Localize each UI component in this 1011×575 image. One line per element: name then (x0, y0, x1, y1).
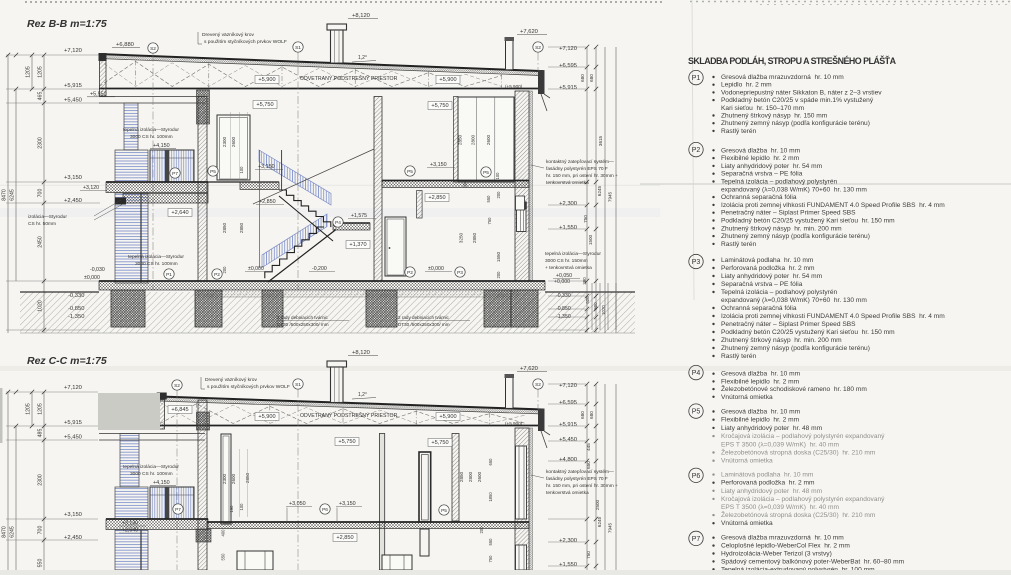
svg-text:2 rady debniacich tvárnic: 2 rady debniacich tvárnic (277, 315, 329, 320)
svg-text:500: 500 (593, 302, 598, 310)
svg-text:Podkladný betón C20/25 vystuže: Podkladný betón C20/25 vystužený Kari si… (721, 218, 895, 225)
svg-text:Perforovaná podložka hr. 2 mm: Perforovaná podložka hr. 2 mm (721, 480, 815, 487)
svg-text:±0,000: ±0,000 (84, 275, 100, 281)
svg-text:tepelná izolácia—Styrodur: tepelná izolácia—Styrodur (128, 254, 184, 260)
svg-text:S2: S2 (174, 383, 180, 389)
svg-text:EPS T 3500 (λ=0,039 W/mK) hr.: EPS T 3500 (λ=0,039 W/mK) hr. 40 mm (721, 441, 839, 448)
svg-text:+5,915: +5,915 (64, 83, 82, 89)
svg-text:Spádový cementový balkónový po: Spádový cementový balkónový poter-WeberB… (721, 558, 905, 565)
svg-text:Liaty anhydridový poter hr. 4: Liaty anhydridový poter hr. 48 mm (721, 488, 823, 495)
svg-text:+6,595: +6,595 (559, 63, 577, 69)
svg-text:1850: 1850 (488, 492, 493, 502)
svg-text:kontaktný zatepľovací systém—: kontaktný zatepľovací systém— (546, 159, 614, 165)
svg-text:650: 650 (488, 458, 493, 466)
svg-text:680: 680 (580, 411, 585, 419)
svg-text:445: 445 (586, 443, 591, 451)
svg-text:+5,900: +5,900 (258, 414, 275, 420)
svg-text:7945: 7945 (608, 522, 613, 533)
svg-text:Flexibilné lepidlo hr. 2 mm: Flexibilné lepidlo hr. 2 mm (721, 378, 800, 385)
svg-text:Gresová dlažba hr. 10 mm: Gresová dlažba hr. 10 mm (721, 147, 801, 154)
svg-text:P4: P4 (335, 220, 341, 226)
svg-text:Drevený väzníkový krov: Drevený väzníkový krov (205, 377, 257, 383)
svg-text:2600: 2600 (486, 134, 491, 145)
svg-text:Izolácia proti zemnej vlhkosti: Izolácia proti zemnej vlhkosti FUNDAMENT… (721, 313, 945, 320)
svg-text:+5,450: +5,450 (64, 435, 82, 441)
svg-text:tenkovrstvá omietka: tenkovrstvá omietka (546, 180, 589, 186)
svg-text:+7,620: +7,620 (520, 29, 538, 35)
svg-text:2600: 2600 (231, 473, 236, 484)
svg-text:Tepelná izolácia – podlahový p: Tepelná izolácia – podlahový polystyrén (721, 179, 838, 186)
svg-text:s použitím styčníkových prvkov: s použitím styčníkových prvkov WOLF (204, 39, 287, 45)
svg-text:Tepelná izolácia-extrudovaný p: Tepelná izolácia-extrudovaný polystyrén … (721, 566, 875, 570)
svg-text:tepelná izolácia—Styrodur: tepelná izolácia—Styrodur (545, 251, 601, 257)
svg-text:P1: P1 (166, 272, 172, 278)
svg-text:P6: P6 (322, 507, 328, 513)
svg-text:Gresová dlažba hr. 10 mm: Gresová dlažba hr. 10 mm (721, 371, 801, 378)
svg-text:tepelná izolácia—Styrodur: tepelná izolácia—Styrodur (123, 464, 179, 470)
svg-text:550: 550 (486, 195, 491, 203)
svg-text:Ochranná separačná fólia: Ochranná separačná fólia (721, 305, 797, 312)
svg-text:1550: 1550 (496, 251, 501, 262)
svg-text:hr. 150 mm, pri ostení hr. 30m: hr. 150 mm, pri ostení hr. 30mm + (546, 173, 618, 179)
svg-text:S1: S1 (295, 382, 301, 388)
svg-text:200: 200 (479, 526, 484, 534)
svg-text:ODVETRANÝ PODSTREŠNÝ PRIESTO: ODVETRANÝ PODSTREŠNÝ PRIESTOR (300, 412, 398, 419)
svg-text:550: 550 (221, 553, 226, 561)
svg-text:(+5,900): (+5,900) (505, 84, 523, 89)
svg-text:+5,900: +5,900 (439, 77, 456, 83)
svg-text:+5,915: +5,915 (64, 420, 82, 426)
svg-text:Podkladný betón C20/25 v spáde: Podkladný betón C20/25 v spáde min.1% vy… (721, 97, 874, 104)
svg-text:Železobetónová stropná doska (: Železobetónová stropná doska (C25/30) hr… (721, 510, 876, 519)
svg-text:tepelná izolácia—Styrodur: tepelná izolácia—Styrodur (123, 127, 179, 133)
svg-text:1,2°: 1,2° (358, 392, 367, 398)
svg-text:+5,900: +5,900 (439, 414, 456, 420)
svg-text:+1,550: +1,550 (559, 225, 577, 231)
svg-text:P1: P1 (692, 75, 701, 82)
svg-text:+2,640: +2,640 (122, 528, 138, 534)
svg-text:+6,880: +6,880 (116, 42, 134, 48)
svg-text:Rez B-B m=1:75: Rez B-B m=1:75 (27, 18, 107, 30)
svg-text:+0,000: +0,000 (554, 279, 570, 285)
svg-text:expandovaný (λ=0,038 W/mK) 70+: expandovaný (λ=0,038 W/mK) 70+60 hr. 130… (721, 297, 867, 304)
svg-text:2800: 2800 (468, 471, 473, 482)
svg-text:SKLADBA PODLÁH, STROPU A STREŠ: SKLADBA PODLÁH, STROPU A STREŠNÉHO PLÁŠŤ… (688, 55, 897, 66)
svg-text:680: 680 (580, 74, 585, 82)
svg-text:Gresová dlažba mrazuvzdorná h: Gresová dlažba mrazuvzdorná hr. 10 mm (721, 74, 844, 81)
svg-text:+6,595: +6,595 (559, 400, 577, 406)
svg-text:+3,150: +3,150 (64, 512, 82, 518)
svg-text:Rastlý terén: Rastlý terén (721, 353, 757, 360)
svg-text:Kari sieťou hr. 150–170 mm: Kari sieťou hr. 150–170 mm (721, 105, 805, 112)
svg-text:+5,750: +5,750 (431, 103, 448, 109)
svg-text:+6,845: +6,845 (171, 407, 188, 413)
svg-text:Penetračný náter – Siplast Pri: Penetračný náter – Siplast Primer Speed … (721, 321, 856, 328)
svg-text:Lepidlo hr. 2 mm: Lepidlo hr. 2 mm (721, 82, 772, 89)
svg-text:+3,150: +3,150 (64, 175, 82, 181)
svg-text:+5,900: +5,900 (258, 77, 275, 83)
svg-text:-0,030: -0,030 (90, 267, 105, 273)
svg-text:2600: 2600 (477, 471, 482, 482)
svg-text:700: 700 (38, 189, 44, 198)
svg-text:P5: P5 (210, 169, 216, 175)
svg-text:fasádny polystyrén EPS 70 F: fasádny polystyrén EPS 70 F (546, 476, 608, 482)
svg-text:CS hr. 50mm: CS hr. 50mm (28, 221, 56, 227)
svg-text:400: 400 (221, 529, 226, 537)
svg-text:Vodonepriepustný náter Sikkato: Vodonepriepustný náter Sikkaton B, náter… (721, 89, 882, 96)
svg-text:550: 550 (38, 559, 44, 568)
svg-text:+1,550: +1,550 (559, 562, 577, 568)
svg-text:650: 650 (586, 461, 591, 469)
svg-text:485: 485 (38, 429, 44, 438)
svg-text:3000 CS hr. 150mm: 3000 CS hr. 150mm (545, 258, 588, 264)
svg-text:2300: 2300 (222, 136, 227, 147)
svg-text:Železobetónová stropná doska (: Železobetónová stropná doska (C25/30) hr… (721, 448, 876, 457)
svg-text:Železobetónové schodiskové ram: Železobetónové schodiskové rameno hr. 18… (721, 384, 867, 393)
svg-text:P7: P7 (175, 507, 181, 513)
svg-text:hr. 150 mm, pri ostení hr. 30m: hr. 150 mm, pri ostení hr. 30mm + (546, 483, 618, 489)
svg-text:Kročajová izolácia – podlahový: Kročajová izolácia – podlahový polystyré… (721, 496, 885, 503)
svg-text:Kročajová izolácia – podlahový: Kročajová izolácia – podlahový polystyré… (721, 433, 885, 440)
svg-text:+8,120: +8,120 (352, 13, 370, 19)
svg-text:6245: 6245 (10, 526, 16, 538)
svg-text:2850: 2850 (222, 222, 227, 233)
svg-text:P6: P6 (692, 473, 701, 480)
svg-text:2300: 2300 (38, 474, 44, 486)
svg-text:P7: P7 (172, 171, 178, 177)
svg-text:2 rady debniacich tvárnic: 2 rady debniacich tvárnic (398, 315, 450, 320)
svg-text:±0,000: ±0,000 (248, 266, 264, 272)
svg-text:Ochranná separačná fólia: Ochranná separačná fólia (721, 194, 797, 201)
svg-text:S1: S1 (295, 45, 301, 51)
svg-text:Zhutnený štrkový násyp hr. mi: Zhutnený štrkový násyp hr. min. 200 mm (721, 337, 842, 344)
svg-text:izolácia—Styrodur: izolácia—Styrodur (28, 214, 67, 220)
svg-text:3000 CS hr. 100mm: 3000 CS hr. 100mm (130, 134, 173, 140)
svg-text:6245: 6245 (10, 189, 16, 201)
svg-text:200: 200 (222, 266, 227, 274)
svg-text:Vnútorná omietka: Vnútorná omietka (721, 458, 773, 465)
svg-text:P5: P5 (407, 169, 413, 175)
svg-text:+4,150: +4,150 (153, 480, 170, 486)
svg-text:+4,150: +4,150 (153, 143, 170, 149)
svg-text:+3,150: +3,150 (258, 164, 275, 170)
svg-text:2450: 2450 (38, 236, 44, 248)
svg-text:DT30 /500x250x300/ mm: DT30 /500x250x300/ mm (398, 322, 450, 327)
svg-text:Zhutnený zemný násyp (podľa ko: Zhutnený zemný násyp (podľa konfigurácie… (721, 345, 870, 352)
svg-text:2800: 2800 (471, 134, 476, 145)
svg-text:+5,750: +5,750 (338, 439, 355, 445)
svg-text:Zhutnený štrkový násyp hr. mi: Zhutnený štrkový násyp hr. min. 200 mm (721, 225, 842, 232)
svg-text:+2,300: +2,300 (559, 538, 577, 544)
svg-text:100: 100 (239, 166, 244, 174)
svg-text:+5,450: +5,450 (559, 437, 577, 443)
svg-text:7945: 7945 (608, 191, 613, 202)
svg-text:2850: 2850 (459, 471, 464, 482)
svg-text:+3,120: +3,120 (83, 185, 99, 191)
svg-text:+1,575: +1,575 (351, 213, 367, 219)
svg-text:P3: P3 (457, 270, 463, 276)
svg-text:8470: 8470 (2, 189, 8, 201)
svg-text:100: 100 (495, 172, 500, 180)
svg-text:+5,915: +5,915 (559, 422, 577, 428)
svg-text:Vnútorná omietka: Vnútorná omietka (721, 394, 773, 401)
svg-text:2300: 2300 (222, 473, 227, 484)
svg-text:+3,050: +3,050 (289, 501, 306, 507)
svg-text:200: 200 (496, 271, 501, 279)
svg-text:Rez C-C m=1:75: Rez C-C m=1:75 (27, 355, 107, 367)
svg-text:P5: P5 (692, 409, 701, 416)
svg-text:Separačná vrstva – PE fólia: Separačná vrstva – PE fólia (721, 281, 803, 288)
svg-text:+3,150: +3,150 (430, 162, 447, 168)
svg-text:Liaty anhydridový poter hr. 4: Liaty anhydridový poter hr. 48 mm (721, 425, 823, 432)
svg-text:S2: S2 (535, 45, 541, 51)
svg-text:kontaktný zatepľovací systém—: kontaktný zatepľovací systém— (546, 469, 614, 475)
svg-text:2850: 2850 (239, 222, 244, 233)
svg-text:3250: 3250 (459, 232, 464, 243)
svg-text:2300: 2300 (38, 137, 44, 149)
svg-text:6245: 6245 (597, 185, 602, 196)
svg-text:+2,850: +2,850 (259, 199, 276, 205)
svg-text:3615: 3615 (598, 135, 603, 146)
svg-text:+7,120: +7,120 (64, 385, 82, 391)
svg-text:±0,000: ±0,000 (428, 266, 444, 272)
svg-text:Drevený väzníkový krov: Drevený väzníkový krov (202, 32, 254, 38)
svg-text:100: 100 (239, 503, 244, 511)
svg-text:P2: P2 (214, 272, 220, 278)
svg-text:P3: P3 (692, 259, 701, 266)
svg-text:+1,370: +1,370 (349, 242, 366, 248)
svg-text:Vnútorná omietka: Vnútorná omietka (721, 520, 773, 527)
svg-text:465: 465 (38, 92, 44, 101)
svg-text:Tepelná izolácia – podlahový p: Tepelná izolácia – podlahový polystyrén (721, 289, 838, 296)
svg-text:P5: P5 (441, 508, 447, 514)
svg-text:ODVETRANÝ PODSTREŠNÝ PRIESTO: ODVETRANÝ PODSTREŠNÝ PRIESTOR (300, 75, 398, 82)
svg-text:Gresová dlažba hr. 10 mm: Gresová dlažba hr. 10 mm (721, 409, 801, 416)
svg-text:Zhutnený zemný násyp (podľa ko: Zhutnený zemný násyp (podľa konfigurácie… (721, 120, 870, 127)
svg-text:+2,450: +2,450 (64, 535, 82, 541)
svg-text:1,2°: 1,2° (358, 55, 367, 61)
svg-text:P4: P4 (692, 370, 701, 377)
svg-text:750: 750 (583, 215, 588, 223)
svg-text:tenkovrstvá omietka: tenkovrstvá omietka (546, 490, 589, 496)
svg-text:2850: 2850 (458, 134, 463, 145)
svg-text:-0,200: -0,200 (312, 266, 327, 272)
svg-text:Penetračný náter – Siplast Pri: Penetračný náter – Siplast Primer Speed … (721, 210, 856, 217)
svg-text:+2,640: +2,640 (171, 210, 188, 216)
svg-text:8470: 8470 (2, 526, 8, 538)
svg-text:+2,300: +2,300 (559, 201, 577, 207)
svg-text:(+5,900): (+5,900) (505, 421, 523, 426)
svg-text:3000 CS hr. 100mm: 3000 CS hr. 100mm (135, 261, 178, 267)
svg-text:Izolácia proti zemnej vlhkosti: Izolácia proti zemnej vlhkosti FUNDAMENT… (721, 202, 945, 209)
svg-text:3000 CS hr. 100mm: 3000 CS hr. 100mm (130, 471, 173, 477)
svg-text:+5,750: +5,750 (431, 440, 448, 446)
svg-text:Perforovaná podložka hr. 2 mm: Perforovaná podložka hr. 2 mm (721, 265, 815, 272)
svg-text:Flexibilné lepidlo hr. 2 mm: Flexibilné lepidlo hr. 2 mm (721, 155, 800, 162)
svg-text:+5,450: +5,450 (64, 98, 82, 104)
svg-text:DT30 /500x250x300/ mm: DT30 /500x250x300/ mm (277, 322, 329, 327)
svg-text:1500: 1500 (588, 234, 593, 245)
svg-text:+7,120: +7,120 (64, 48, 82, 54)
svg-text:6245: 6245 (597, 516, 602, 527)
svg-text:1205: 1205 (26, 66, 32, 78)
svg-text:Rastlý terén: Rastlý terén (721, 128, 757, 135)
svg-text:680: 680 (589, 74, 594, 82)
svg-text:200: 200 (496, 191, 501, 199)
svg-text:+ tenkovrstvá omietka: + tenkovrstvá omietka (545, 265, 592, 271)
svg-text:300: 300 (463, 180, 468, 188)
svg-text:680: 680 (589, 411, 594, 419)
svg-text:Celoplošné lepidlo-WeberCol Fl: Celoplošné lepidlo-WeberCol Flex hr. 2 m… (721, 543, 850, 550)
svg-text:750: 750 (488, 555, 493, 563)
svg-text:P2: P2 (692, 147, 701, 154)
svg-text:Separačná vrstva – PE fólia: Separačná vrstva – PE fólia (721, 171, 803, 178)
svg-text:Hydroizolácia-Weber Terizol (3: Hydroizolácia-Weber Terizol (3 vrstvy) (721, 551, 832, 558)
svg-text:1205: 1205 (38, 66, 44, 78)
svg-text:s použitím styčníkových prvkov: s použitím styčníkových prvkov WOLF (207, 384, 290, 390)
svg-text:Podkladný betón C20/25 vystuže: Podkladný betón C20/25 vystužený Kari si… (721, 329, 895, 336)
svg-text:P7: P7 (692, 536, 701, 543)
svg-text:Gresová dlažba mrazuvzdorná h: Gresová dlažba mrazuvzdorná hr. 10 mm (721, 535, 844, 542)
svg-text:Zhutnený štrkový násyp hr. 15: Zhutnený štrkový násyp hr. 150 mm (721, 113, 828, 120)
svg-text:Laminátová podlaha hr. 10 mm: Laminátová podlaha hr. 10 mm (721, 472, 814, 479)
svg-text:P5: P5 (483, 170, 489, 176)
svg-text:P2: P2 (407, 270, 413, 276)
svg-text:380: 380 (582, 277, 587, 285)
svg-text:2600: 2600 (231, 136, 236, 147)
svg-text:2500: 2500 (595, 499, 600, 510)
svg-text:+3,150: +3,150 (339, 501, 356, 507)
svg-text:S2: S2 (150, 46, 156, 52)
svg-text:+2,450: +2,450 (64, 198, 82, 204)
svg-text:+5,915: +5,915 (559, 85, 577, 91)
svg-text:Flexibilné lepidlo hr. 2 mm: Flexibilné lepidlo hr. 2 mm (721, 417, 800, 424)
svg-text:750: 750 (487, 217, 492, 225)
svg-text:+2,850: +2,850 (428, 195, 445, 201)
svg-text:Liaty anhydridový poter hr. 5: Liaty anhydridový poter hr. 54 mm (721, 163, 823, 170)
svg-text:expandovaný (λ=0,038 W/mK) 70+: expandovaný (λ=0,038 W/mK) 70+60 hr. 130… (721, 186, 867, 193)
svg-text:Laminátová podlaha hr. 10 mm: Laminátová podlaha hr. 10 mm (721, 257, 814, 264)
svg-text:2850: 2850 (472, 232, 477, 243)
svg-text:fasádny polystyrén EPS 70 F: fasádny polystyrén EPS 70 F (546, 166, 608, 172)
svg-text:550: 550 (488, 538, 493, 546)
svg-text:+5,750: +5,750 (256, 102, 273, 108)
svg-text:750: 750 (586, 551, 591, 559)
svg-text:+3,130: +3,130 (122, 521, 138, 527)
svg-text:EPS T 3500 (λ=0,039 W/mK) hr.: EPS T 3500 (λ=0,039 W/mK) hr. 40 mm (721, 504, 839, 511)
svg-text:+4,800: +4,800 (559, 457, 577, 463)
svg-text:700: 700 (38, 526, 44, 535)
svg-text:+7,620: +7,620 (520, 366, 538, 372)
svg-text:Zhutnený zemný násyp (podľa ko: Zhutnený zemný násyp (podľa konfigurácie… (721, 233, 870, 240)
svg-text:+0,050: +0,050 (556, 273, 572, 279)
svg-text:S2: S2 (535, 382, 541, 388)
svg-text:+8,120: +8,120 (352, 350, 370, 356)
svg-text:+2,850: +2,850 (336, 535, 353, 541)
svg-text:1205: 1205 (38, 403, 44, 415)
svg-text:Rastlý terén: Rastlý terén (721, 241, 757, 248)
svg-text:190: 190 (229, 505, 234, 513)
svg-text:1205: 1205 (26, 403, 32, 415)
svg-text:Liaty anhydridový poter hr. 5: Liaty anhydridový poter hr. 54 mm (721, 273, 823, 280)
